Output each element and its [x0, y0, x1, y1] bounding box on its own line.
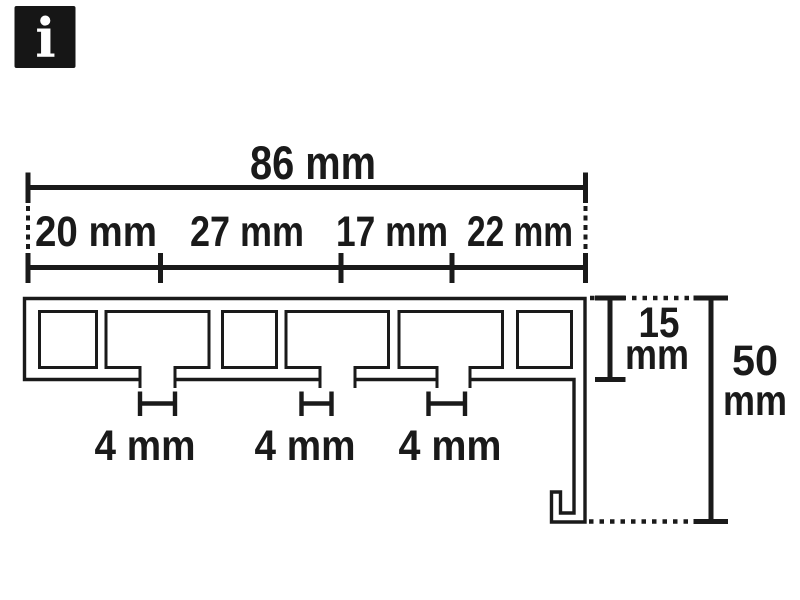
- segment-label-2: 27 mm: [190, 208, 304, 256]
- diagram-page: i 86 mm 20 mm 27 mm 17 mm 22 mm 4: [0, 0, 800, 600]
- slot-label-2: 4 mm: [255, 422, 356, 470]
- total-height-unit: mm: [723, 377, 787, 425]
- slot-label-3: 4 mm: [399, 422, 502, 470]
- info-icon: i: [35, 6, 56, 70]
- profile-chamber-1: [40, 312, 97, 368]
- info-button[interactable]: i: [15, 6, 76, 70]
- segment-label-4: 22 mm: [467, 208, 573, 256]
- segment-label-3: 17 mm: [336, 208, 448, 256]
- profile-chamber-3: [518, 312, 572, 368]
- segment-label-1: 20 mm: [35, 208, 157, 256]
- slot-label-1: 4 mm: [95, 422, 196, 470]
- profile-height-unit: mm: [625, 331, 689, 379]
- profile-chamber-2: [223, 312, 277, 368]
- overall-width-label: 86 mm: [250, 136, 376, 189]
